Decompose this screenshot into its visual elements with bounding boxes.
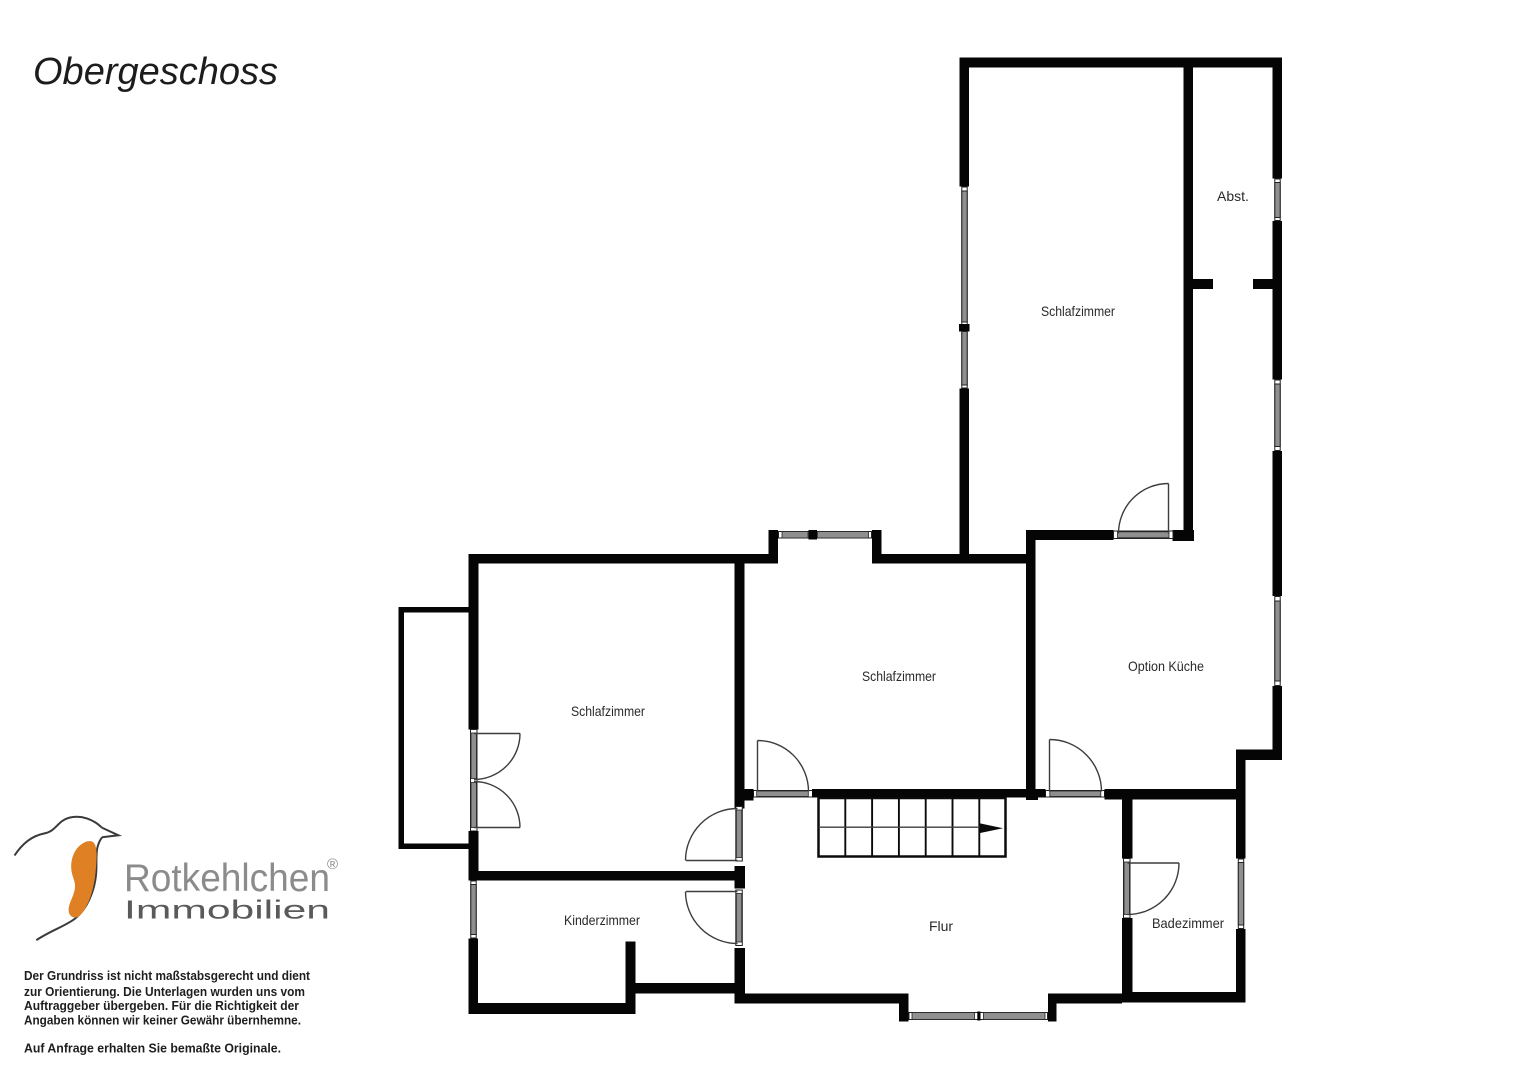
svg-text:Kinderzimmer: Kinderzimmer bbox=[564, 912, 640, 928]
svg-text:Der Grundriss ist nicht maßsta: Der Grundriss ist nicht maßstabsgerecht … bbox=[24, 968, 311, 983]
svg-text:zur Orientierung. Die Unterlag: zur Orientierung. Die Unterlagen wurden … bbox=[24, 984, 305, 999]
svg-text:Auftraggeber übergeben. Für di: Auftraggeber übergeben. Für die Richtigk… bbox=[24, 998, 299, 1013]
svg-text:Badezimmer: Badezimmer bbox=[1152, 915, 1224, 931]
svg-text:Schlafzimmer: Schlafzimmer bbox=[862, 668, 936, 684]
svg-text:Auf Anfrage erhalten Sie bemaß: Auf Anfrage erhalten Sie bemaßte Origina… bbox=[24, 1040, 281, 1055]
svg-text:Obergeschoss: Obergeschoss bbox=[33, 51, 278, 93]
svg-text:®: ® bbox=[327, 856, 338, 873]
svg-text:Option Küche: Option Küche bbox=[1128, 658, 1204, 674]
svg-text:Immobilien: Immobilien bbox=[124, 895, 330, 925]
svg-text:Schlafzimmer: Schlafzimmer bbox=[1041, 303, 1115, 319]
svg-text:Angaben können wir keiner Gewä: Angaben können wir keiner Gewähr übernhe… bbox=[24, 1012, 301, 1027]
svg-text:Schlafzimmer: Schlafzimmer bbox=[571, 703, 645, 719]
svg-text:Abst.: Abst. bbox=[1217, 188, 1249, 204]
svg-text:Flur: Flur bbox=[929, 918, 953, 934]
